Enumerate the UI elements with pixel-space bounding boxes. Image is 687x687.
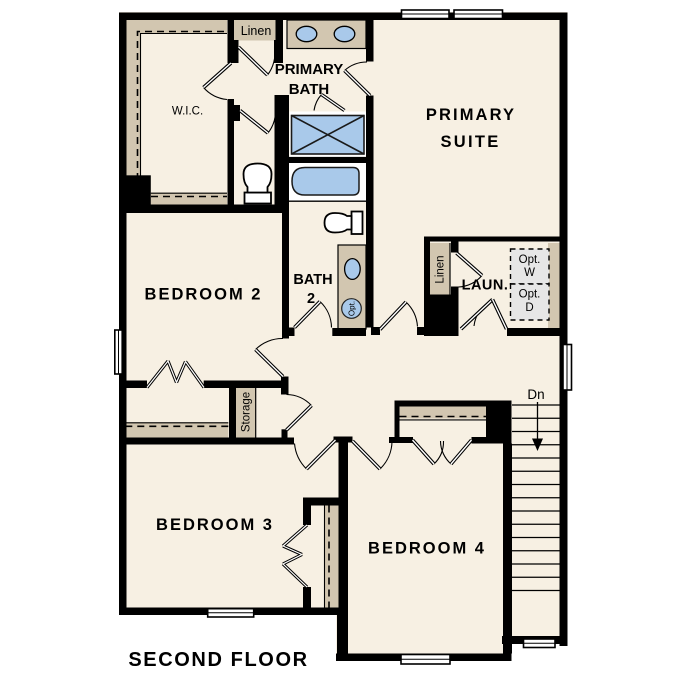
svg-text:W: W [524, 267, 535, 279]
svg-text:LAUN.: LAUN. [462, 278, 509, 294]
svg-text:BEDROOM 2: BEDROOM 2 [145, 286, 263, 304]
svg-text:PRIMARY: PRIMARY [426, 106, 516, 124]
svg-text:BEDROOM 3: BEDROOM 3 [156, 516, 274, 534]
svg-text:W.I.C.: W.I.C. [172, 106, 203, 118]
svg-text:D: D [525, 302, 533, 314]
svg-text:SECOND FLOOR: SECOND FLOOR [128, 649, 308, 671]
svg-text:Opt.: Opt. [519, 254, 541, 266]
svg-text:BATH: BATH [293, 272, 332, 288]
svg-text:Opt.: Opt. [348, 301, 357, 316]
svg-text:SUITE: SUITE [440, 133, 500, 151]
svg-text:Storage: Storage [241, 392, 253, 432]
svg-text:BATH: BATH [289, 81, 330, 98]
svg-text:PRIMARY: PRIMARY [275, 61, 344, 78]
svg-text:Dn: Dn [527, 387, 544, 402]
svg-text:2: 2 [307, 291, 315, 307]
svg-text:Linen: Linen [435, 255, 447, 283]
svg-text:BEDROOM 4: BEDROOM 4 [368, 540, 486, 558]
svg-text:Linen: Linen [241, 24, 272, 38]
svg-text:Opt.: Opt. [519, 289, 541, 301]
